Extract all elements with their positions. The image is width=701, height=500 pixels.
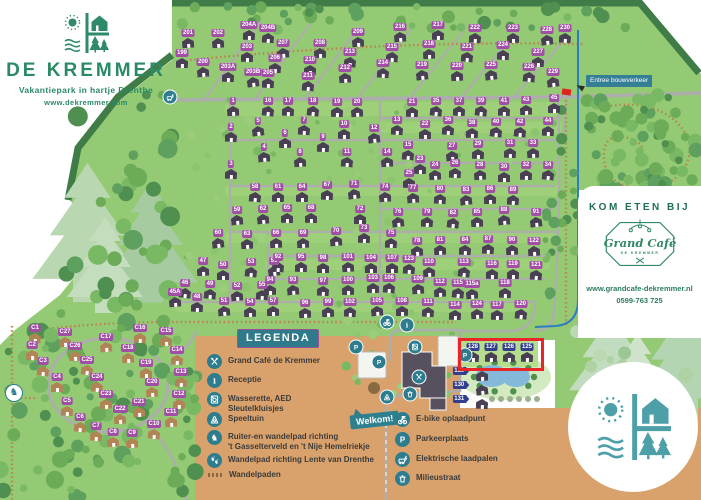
tree (493, 19, 501, 27)
tree (112, 183, 123, 194)
tree (543, 256, 550, 263)
tree (409, 309, 415, 315)
tree (584, 122, 593, 131)
parking-icon: P (395, 432, 410, 447)
bush (498, 396, 504, 402)
tree (33, 465, 42, 474)
tree (93, 457, 104, 468)
tree (427, 23, 436, 32)
tree (187, 131, 195, 139)
tree (549, 217, 560, 228)
tree (687, 174, 698, 185)
tree (331, 113, 339, 121)
tree (620, 105, 634, 119)
tree (585, 361, 597, 373)
tree (67, 256, 84, 273)
tree (651, 88, 665, 102)
washer-icon (207, 392, 222, 407)
legend-item: Elektrische laadpalen (395, 452, 525, 467)
tree (177, 18, 188, 29)
tree (87, 393, 94, 400)
tree (637, 131, 648, 142)
tree (384, 217, 393, 226)
tree (525, 142, 530, 147)
tree (492, 388, 498, 394)
tree (353, 228, 361, 236)
tree (139, 247, 148, 256)
park-logo-icon (60, 10, 112, 56)
tree (355, 172, 359, 176)
tree (214, 196, 219, 201)
tree (143, 399, 153, 409)
tree (509, 247, 513, 251)
tree (598, 169, 613, 184)
tree (50, 426, 61, 437)
tree (29, 362, 38, 371)
tree (106, 393, 117, 404)
tree (391, 293, 396, 298)
tree (154, 246, 168, 260)
legend-item: Milieustraat (395, 471, 525, 486)
tree (635, 153, 649, 167)
tree (569, 169, 578, 178)
tree (160, 207, 180, 227)
tree (11, 402, 28, 419)
svg-text:♞: ♞ (211, 433, 219, 443)
tree (32, 376, 49, 393)
tree (409, 22, 416, 29)
tree (450, 210, 454, 214)
tree (472, 101, 478, 107)
tree (244, 230, 253, 239)
tree (337, 301, 343, 307)
tree (358, 177, 364, 183)
ebike-icon (395, 412, 410, 427)
legend-item: E-bike oplaadpunt (395, 412, 525, 427)
tree (159, 280, 178, 299)
tree (541, 2, 555, 16)
tree (564, 13, 572, 21)
tree (570, 187, 577, 194)
charger-icon (395, 452, 410, 467)
tree (655, 129, 666, 140)
tree (285, 18, 293, 26)
tree (581, 6, 592, 17)
tree (249, 237, 257, 245)
tree (266, 169, 272, 175)
playground-icon (207, 412, 222, 427)
tree (528, 24, 535, 31)
tree (426, 289, 432, 295)
tree (46, 471, 64, 489)
bush (516, 396, 522, 402)
tree (7, 428, 20, 441)
tree (558, 190, 567, 199)
tree (337, 150, 344, 157)
tree (232, 111, 240, 119)
info-icon: i (207, 373, 222, 388)
tree (623, 175, 633, 185)
tree (158, 139, 177, 158)
tree (343, 315, 353, 325)
tree (166, 371, 180, 385)
svg-text:DE KREMMER: DE KREMMER (620, 251, 659, 255)
tree (321, 136, 327, 142)
tree (152, 333, 167, 348)
tree (192, 163, 200, 171)
bush (534, 396, 540, 402)
tree (607, 356, 614, 363)
tree (241, 260, 247, 266)
tree (618, 346, 631, 359)
tree (4, 385, 16, 397)
tree (126, 370, 133, 377)
tree (547, 198, 558, 209)
tree (545, 287, 556, 298)
tree (60, 384, 71, 395)
tree (665, 94, 673, 102)
tree (137, 347, 147, 357)
tree (122, 428, 139, 445)
cafe-heading: KOM ETEN BIJ (578, 202, 701, 213)
tree (239, 287, 245, 293)
tree (44, 328, 59, 343)
tree (427, 189, 431, 193)
tree (457, 23, 466, 32)
tree (42, 345, 49, 352)
tree (678, 368, 693, 383)
tree (99, 287, 111, 299)
tree (464, 131, 470, 137)
tree (507, 158, 513, 164)
tree (329, 107, 334, 112)
svg-text:i: i (213, 376, 216, 385)
tree (253, 147, 262, 156)
tree (204, 152, 210, 158)
tree (129, 150, 139, 160)
tree (551, 120, 557, 126)
tree (612, 130, 624, 142)
tree (677, 166, 688, 177)
tree (122, 454, 135, 467)
tree (185, 252, 193, 260)
bush (489, 396, 495, 402)
tree (84, 376, 98, 390)
tree (621, 23, 630, 32)
tree (334, 226, 339, 231)
tree (219, 127, 225, 133)
tree (247, 17, 256, 26)
tree (271, 151, 276, 156)
tree (315, 5, 324, 14)
tree (345, 107, 351, 113)
legend-label: E-bike oplaadpunt (416, 412, 485, 424)
tree (339, 284, 347, 292)
legend-label: Ruiter-en wandelpad richting 't Gasselte… (228, 430, 370, 451)
tree (396, 16, 406, 26)
bush (525, 396, 531, 402)
tree (362, 265, 369, 272)
tree (592, 150, 601, 159)
tree (73, 378, 80, 385)
tree (649, 162, 663, 176)
tree (20, 484, 27, 491)
tree (82, 446, 90, 454)
tree (453, 271, 459, 277)
tree (599, 101, 611, 113)
tree (557, 105, 567, 115)
tree (171, 473, 185, 487)
horse-icon: ♞ (207, 430, 222, 445)
park-website: www.dekremmer.com (0, 98, 172, 107)
tree (359, 207, 364, 212)
legend-label: Wandelpaden (229, 468, 281, 480)
tree (345, 124, 353, 132)
tree (406, 161, 412, 167)
tree (172, 335, 181, 344)
tree (117, 324, 125, 332)
cafe-phone: 0599-763 725 (578, 296, 701, 305)
tree (394, 110, 399, 115)
tree (146, 182, 161, 197)
legend-item: Wasserette, AED Sleutelkluisjes (207, 392, 442, 413)
tree (556, 133, 567, 144)
park-logo-icon (591, 389, 675, 465)
map-green-main (172, 0, 578, 340)
tree (457, 153, 462, 158)
tree (675, 156, 683, 164)
cafe-panel: KOM ETEN BIJ Grand Café DE KREMMER www.g… (578, 186, 701, 338)
tree (670, 108, 681, 119)
tree (211, 246, 220, 255)
highlight-rectangle (458, 338, 544, 371)
tree (551, 236, 562, 247)
trail-icon (208, 473, 222, 477)
park-logo-badge (568, 362, 698, 492)
tree (173, 404, 183, 414)
tree (476, 8, 483, 15)
legend-item: PParkeerplaats (395, 432, 525, 447)
legend-label: Receptie (228, 373, 261, 385)
tree (377, 319, 387, 329)
tree (611, 157, 620, 166)
legend-label: Speeltuin (228, 412, 264, 424)
tree (183, 416, 191, 424)
tree (543, 237, 549, 243)
construction-entrance-sign: Entree bouwverkeer (586, 75, 652, 87)
tree (413, 3, 420, 10)
tree (636, 113, 648, 125)
tree (126, 389, 135, 398)
tree (531, 128, 540, 137)
legend-label: Milieustraat (416, 471, 460, 483)
svg-text:Grand Café: Grand Café (603, 236, 676, 250)
tree (625, 120, 637, 132)
tree (67, 486, 75, 494)
tree (280, 10, 288, 18)
tree (128, 402, 139, 413)
tree (315, 120, 320, 125)
legend-label: Elektrische laadpalen (416, 452, 498, 464)
tree (266, 295, 271, 300)
tree (632, 94, 643, 105)
tree (557, 246, 564, 253)
tree (510, 10, 518, 18)
tree (52, 451, 69, 468)
bush (507, 396, 513, 402)
tree (510, 388, 516, 394)
legend-label: Wasserette, AED Sleutelkluisjes (228, 392, 291, 413)
legend-panel: Grand Café de KremmeriReceptieWasserette… (195, 336, 457, 500)
tree (531, 374, 537, 380)
tree (73, 467, 83, 477)
tree (226, 97, 231, 102)
tree (636, 147, 644, 155)
utensils-icon (207, 354, 222, 369)
tree (505, 22, 515, 32)
tree (126, 279, 139, 292)
svg-text:P: P (400, 435, 405, 444)
tree (190, 2, 200, 12)
construction-entrance-marker (562, 88, 572, 95)
footpath-icon (207, 453, 222, 468)
park-subtitle: Vakantiepark in hartje Drenthe (0, 85, 172, 95)
tree (260, 98, 268, 106)
tree (91, 406, 106, 421)
tree (272, 195, 277, 200)
tree (96, 197, 106, 207)
park-map: 199200201202203203A203B204A204B205206207… (0, 0, 701, 500)
tree (403, 103, 412, 112)
park-logo-block: DE KREMMER Vakantiepark in hartje Drenth… (0, 0, 172, 140)
tree (107, 251, 122, 266)
tree (478, 16, 491, 29)
legend-label: Grand Café de Kremmer (228, 354, 320, 366)
tree (378, 155, 384, 161)
tree (88, 245, 108, 265)
tree (629, 138, 637, 146)
legend-label: Parkeerplaats (416, 432, 468, 444)
tree (351, 8, 364, 21)
tree (305, 8, 314, 17)
cafe-website: www.grandcafe-dekremmer.nl (578, 284, 701, 293)
tree (84, 419, 98, 433)
tree (99, 435, 112, 448)
waste-icon (395, 471, 410, 486)
tree (67, 344, 84, 361)
tree (467, 260, 474, 267)
tree (178, 453, 185, 460)
tree (557, 147, 566, 156)
tree (368, 148, 374, 154)
tree (18, 350, 33, 365)
tree (219, 285, 227, 293)
tree (546, 169, 556, 179)
tree (244, 116, 253, 125)
tree (327, 176, 333, 182)
legend-item: Grand Café de Kremmer (207, 354, 442, 369)
tree (385, 186, 389, 190)
tree (450, 24, 457, 31)
tree (597, 115, 605, 123)
tree (593, 7, 605, 19)
legend-label: Wandelpad richting Lente van Drenthe (228, 453, 374, 465)
tree (40, 410, 51, 421)
tree (442, 10, 455, 23)
tree (542, 208, 551, 217)
tree (57, 309, 66, 318)
tree (294, 4, 301, 11)
park-title: DE KREMMER (0, 60, 172, 82)
tree (378, 121, 387, 130)
tree (157, 315, 170, 328)
tree (69, 367, 78, 376)
tree (594, 349, 607, 362)
tree (41, 394, 49, 402)
tree (264, 235, 273, 244)
tree (247, 5, 257, 15)
legend-item: iReceptie (207, 373, 442, 388)
tree (272, 25, 283, 36)
tree (387, 177, 395, 185)
grand-cafe-logo: Grand Café DE KREMMER (594, 213, 686, 275)
tree (224, 2, 233, 11)
tree (128, 168, 147, 187)
tree (662, 140, 669, 147)
tree (53, 437, 64, 448)
tree (183, 430, 193, 440)
tree (396, 302, 402, 308)
tree (5, 348, 13, 356)
tree (119, 293, 132, 306)
legend-title: LEGENDA (237, 329, 319, 348)
tree (640, 106, 648, 114)
tree (185, 367, 193, 375)
tree (325, 16, 334, 25)
tree (123, 230, 143, 250)
